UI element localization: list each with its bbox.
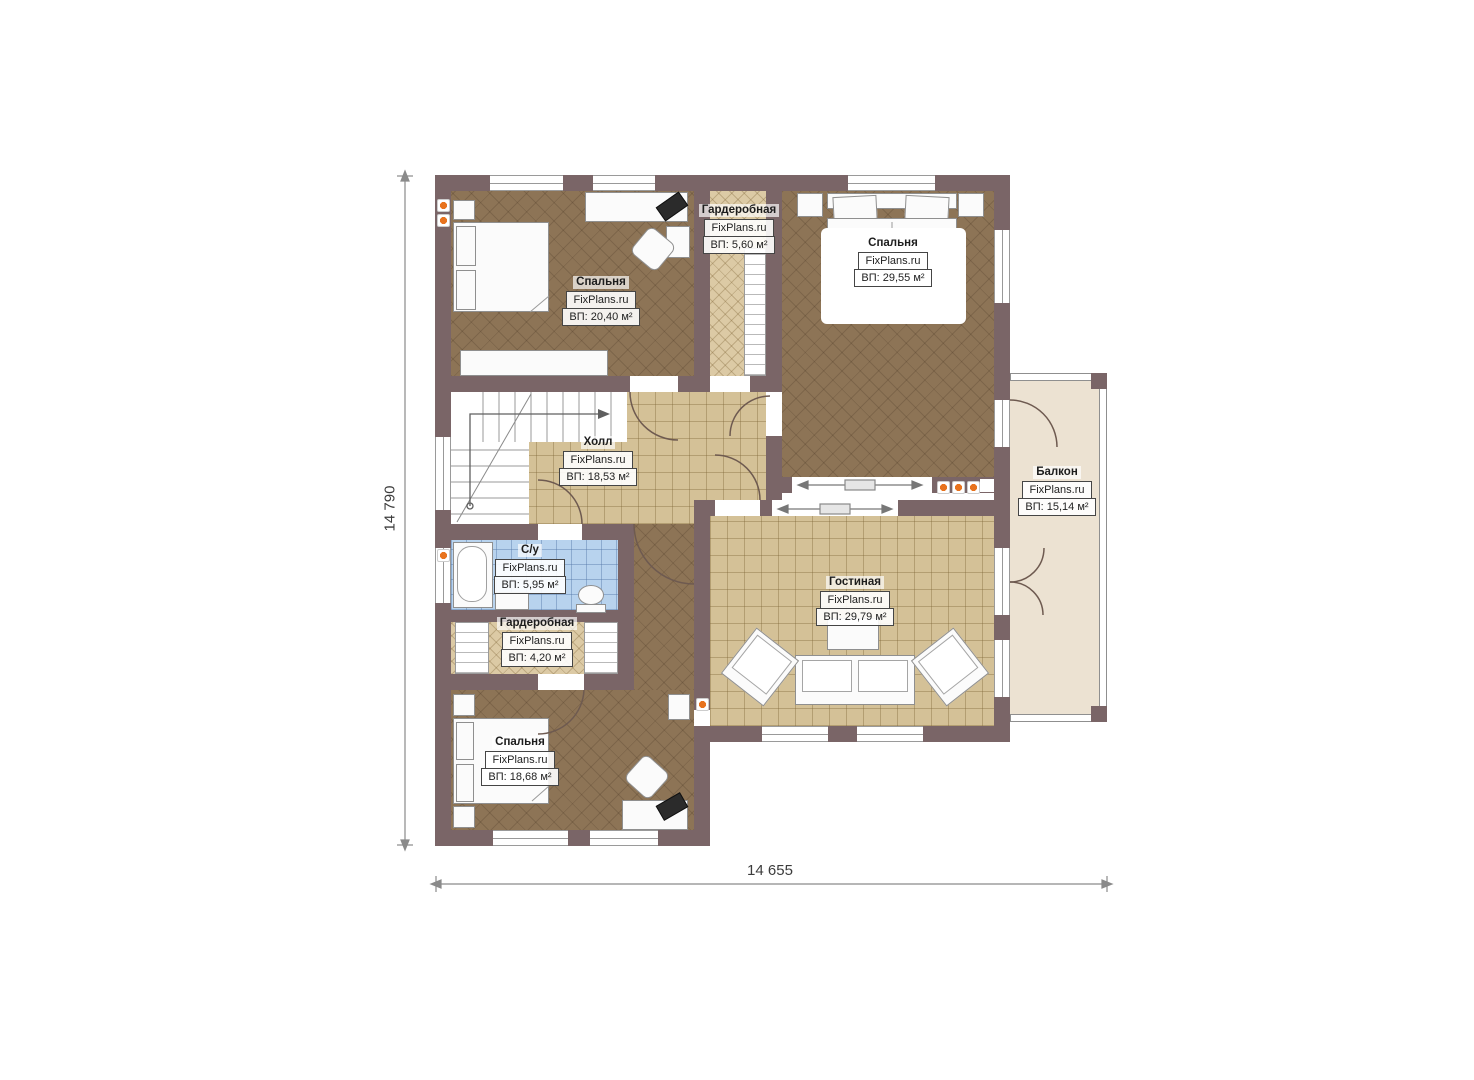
door-opening <box>715 500 760 516</box>
room-brand: FixPlans.ru <box>566 291 635 309</box>
room-label-bedroom-top-left: Спальня FixPlans.ru ВП: 20,40 м² <box>516 276 686 326</box>
dresser <box>460 350 608 376</box>
sofa-cushion <box>802 660 852 692</box>
spotlight-icon <box>696 698 709 711</box>
room-label-living-room: Гостиная FixPlans.ru ВП: 29,79 м² <box>770 576 940 626</box>
room-label-wardrobe-bottom: Гардеробная FixPlans.ru ВП: 4,20 м² <box>452 617 622 667</box>
sliding-door <box>792 477 932 493</box>
balcony-railing-right <box>1099 381 1107 722</box>
dimension-height: 14 790 <box>382 469 399 549</box>
room-brand: FixPlans.ru <box>485 751 554 769</box>
room-area: ВП: 18,68 м² <box>481 768 558 786</box>
window <box>493 830 568 846</box>
room-area: ВП: 4,20 м² <box>501 649 572 667</box>
floor-corridor <box>634 524 694 690</box>
room-name: Гостиная <box>826 576 884 589</box>
nightstand <box>453 200 475 220</box>
wall <box>435 830 710 846</box>
room-label-balcony: Балкон FixPlans.ru ВП: 15,14 м² <box>972 466 1142 516</box>
spotlight-icon <box>437 214 450 227</box>
room-area: ВП: 29,79 м² <box>816 608 893 626</box>
room-area: ВП: 18,53 м² <box>559 468 636 486</box>
room-area: ВП: 20,40 м² <box>562 308 639 326</box>
room-name: Балкон <box>1033 466 1081 479</box>
room-name: С/у <box>518 544 542 557</box>
room-name: Гардеробная <box>497 617 577 630</box>
room-label-hall: Холл FixPlans.ru ВП: 18,53 м² <box>513 436 683 486</box>
balcony-post <box>1091 706 1107 722</box>
nightstand <box>958 193 984 217</box>
room-label-bathroom: С/у FixPlans.ru ВП: 5,95 м² <box>445 544 615 594</box>
balcony-door-opening <box>994 548 1010 615</box>
wall <box>694 726 1010 742</box>
sliding-door <box>772 500 898 516</box>
sofa <box>795 655 915 705</box>
room-label-wardrobe-top: Гардеробная FixPlans.ru ВП: 5,60 м² <box>654 204 824 254</box>
room-brand: FixPlans.ru <box>1022 481 1091 499</box>
room-brand: FixPlans.ru <box>502 632 571 650</box>
door-opening <box>710 376 750 392</box>
room-area: ВП: 5,95 м² <box>494 576 565 594</box>
room-name: Гардеробная <box>699 204 779 217</box>
window <box>590 830 658 846</box>
floor-balcony <box>1010 381 1099 722</box>
shelf <box>668 694 690 720</box>
window <box>857 726 923 742</box>
room-brand: FixPlans.ru <box>704 219 773 237</box>
door-opening <box>766 392 782 436</box>
sofa-cushion <box>858 660 908 692</box>
window <box>435 437 451 510</box>
balcony-door-opening <box>994 400 1010 447</box>
spotlight-icon <box>952 481 965 494</box>
window <box>490 175 563 191</box>
window <box>848 175 935 191</box>
room-brand: FixPlans.ru <box>820 591 889 609</box>
room-area: ВП: 15,14 м² <box>1018 498 1095 516</box>
spotlight-icon <box>937 481 950 494</box>
wall <box>694 516 710 846</box>
toilet-tank <box>576 604 606 613</box>
closet-shelves <box>744 248 766 376</box>
room-brand: FixPlans.ru <box>495 559 564 577</box>
room-brand: FixPlans.ru <box>563 451 632 469</box>
room-label-bedroom-top-right: Спальня FixPlans.ru ВП: 29,55 м² <box>808 237 978 287</box>
spotlight-icon <box>437 199 450 212</box>
dimension-width: 14 655 <box>735 862 805 879</box>
window <box>994 230 1010 303</box>
window <box>762 726 828 742</box>
door-opening <box>694 710 710 726</box>
pillow <box>456 270 476 310</box>
pillow <box>456 226 476 266</box>
balcony-post <box>1091 373 1107 389</box>
door-opening <box>538 524 582 540</box>
room-label-bedroom-bottom-left: Спальня FixPlans.ru ВП: 18,68 м² <box>435 736 605 786</box>
nightstand <box>453 694 475 716</box>
room-name: Спальня <box>865 237 921 250</box>
window <box>593 175 655 191</box>
nightstand <box>453 806 475 828</box>
door-opening <box>538 674 584 690</box>
room-name: Спальня <box>573 276 629 289</box>
floor-plan-page: Спальня FixPlans.ru ВП: 20,40 м² Гардеро… <box>0 0 1474 1080</box>
door-opening <box>630 376 678 392</box>
room-area: ВП: 29,55 м² <box>854 269 931 287</box>
room-name: Спальня <box>492 736 548 749</box>
room-brand: FixPlans.ru <box>858 252 927 270</box>
window <box>994 640 1010 697</box>
room-area: ВП: 5,60 м² <box>703 236 774 254</box>
room-name: Холл <box>581 436 616 449</box>
sink <box>495 592 529 610</box>
